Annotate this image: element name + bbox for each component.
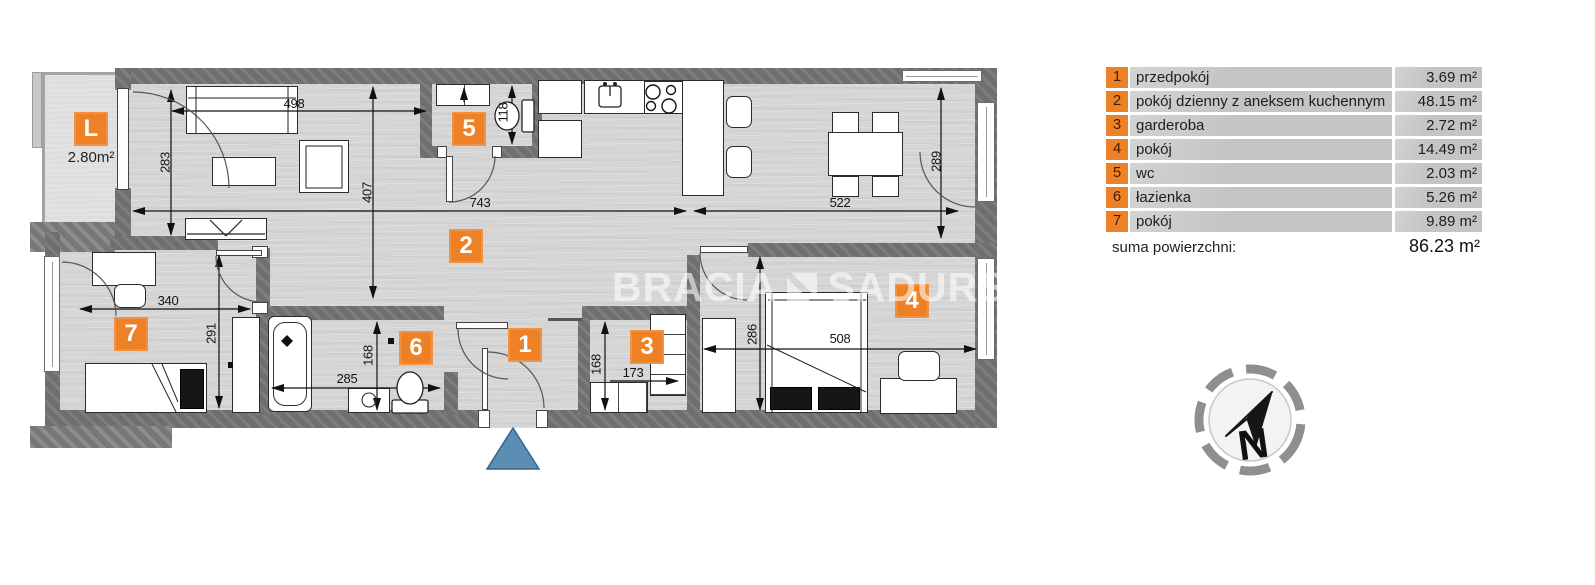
kitchen-cabinet-b — [538, 120, 582, 158]
balcony-door — [117, 88, 129, 190]
legend-row-name: łazienka — [1130, 187, 1392, 208]
bar-chair-b — [726, 146, 752, 178]
dim-168-bath: 168 — [361, 338, 376, 374]
legend-row: 1 przedpokój 3.69 m² — [1106, 67, 1482, 88]
coffee-table — [212, 157, 276, 186]
legend-row-number: 2 — [1106, 91, 1128, 112]
wall-left-upper — [115, 68, 131, 90]
stove — [644, 81, 684, 114]
legend-row: 5 wc 2.03 m² — [1106, 163, 1482, 184]
watermark-logo-icon — [787, 273, 817, 303]
wc-washbasin — [436, 84, 490, 106]
dim-522: 522 — [822, 195, 858, 210]
legend-row: 4 pokój 14.49 m² — [1106, 139, 1482, 160]
floorplan-page: 1 2 3 4 5 6 7 L 2.80m² 498 283 407 743 5… — [0, 0, 1595, 585]
legend-row-name: pokój — [1130, 211, 1392, 232]
room4-wardrobe — [702, 318, 736, 413]
dining-chair-3 — [832, 176, 859, 197]
wc-door — [446, 156, 453, 202]
dining-chair-1 — [832, 112, 859, 133]
legend-row: 2 pokój dzienny z aneksem kuchennym 48.1… — [1106, 91, 1482, 112]
legend-row-area: 2.03 m² — [1395, 163, 1482, 184]
dim-340: 340 — [150, 293, 186, 308]
legend-row-name: garderoba — [1130, 115, 1392, 136]
wall-corner-block — [30, 222, 115, 252]
kitchen-island — [682, 80, 724, 196]
bar-chair-a — [726, 96, 752, 128]
legend-row-name: pokój dzienny z aneksem kuchennym — [1130, 91, 1392, 112]
watermark-text-right: SADURSCY — [827, 264, 1065, 311]
legend-row: 7 pokój 9.89 m² — [1106, 211, 1482, 232]
room7-desk — [92, 252, 156, 286]
jamb-wc-b — [492, 146, 502, 158]
balcony-area: 2.80m² — [56, 149, 126, 166]
room4-desk — [880, 378, 957, 414]
dining-table — [828, 132, 903, 176]
legend-row-area: 2.72 m² — [1395, 115, 1482, 136]
legend-row: 6 łazienka 5.26 m² — [1106, 187, 1482, 208]
legend-total-value: 86.23 m² — [1409, 236, 1482, 257]
legend-row-number: 3 — [1106, 115, 1128, 136]
room4-pillow-b — [818, 387, 860, 410]
room-label-6: 6 — [399, 331, 433, 365]
legend-row-number: 7 — [1106, 211, 1128, 232]
watermark-text-left: BRACIA — [612, 264, 777, 311]
bath-washbasin — [348, 388, 390, 413]
wall-bottom-step — [30, 426, 172, 448]
wall-dining-room4 — [748, 243, 997, 257]
room-label-3: 3 — [630, 330, 664, 364]
jamb-entrance-a — [478, 410, 490, 428]
entrance-door — [482, 348, 488, 410]
room-label-7: 7 — [114, 317, 148, 351]
dim-173: 173 — [615, 365, 651, 380]
dim-291: 291 — [204, 316, 219, 352]
room4-chair — [898, 351, 940, 381]
compass: N — [1190, 360, 1310, 480]
wall-left-lower — [115, 188, 131, 240]
room-label-1: 1 — [508, 328, 542, 362]
dining-chair-4 — [872, 176, 899, 197]
bathtub-inner — [273, 322, 307, 406]
dim-508: 508 — [822, 331, 858, 346]
floorplan: 1 2 3 4 5 6 7 L 2.80m² 498 283 407 743 5… — [0, 0, 1010, 585]
jamb-entrance-b — [536, 410, 548, 428]
wall-stub-left — [32, 72, 42, 148]
watermark: BRACIA SADURSCY — [612, 264, 1066, 311]
dining-chair-2 — [872, 112, 899, 133]
dim-286: 286 — [745, 317, 760, 353]
legend-row-area: 5.26 m² — [1395, 187, 1482, 208]
room4-pillow-a — [770, 387, 812, 410]
dim-118: 118 — [496, 95, 511, 131]
compass-north-label: N — [1235, 419, 1272, 470]
legend-row-number: 1 — [1106, 67, 1128, 88]
legend-row-area: 14.49 m² — [1395, 139, 1482, 160]
legend-row-name: pokój — [1130, 139, 1392, 160]
wall-bath-stub — [444, 372, 458, 415]
dim-743: 743 — [462, 195, 498, 210]
room7-chair — [114, 284, 146, 308]
legend-row-area: 48.15 m² — [1395, 91, 1482, 112]
room4-door — [700, 246, 748, 253]
legend-row: 3 garderoba 2.72 m² — [1106, 115, 1482, 136]
garderoba-shelf-bottom — [590, 382, 648, 413]
legend-row-number: 6 — [1106, 187, 1128, 208]
room7-wardrobe — [232, 317, 260, 413]
wall-room7-left-a — [45, 232, 60, 258]
jamb-corridor-mid — [252, 302, 268, 314]
dim-168-ward: 168 — [589, 347, 604, 383]
garderoba-sill — [548, 318, 582, 321]
tv-stand — [185, 218, 267, 240]
balcony-label: L — [74, 112, 108, 146]
legend-row-name: przedpokój — [1130, 67, 1392, 88]
hall-bath-door — [456, 322, 508, 329]
legend-row-number: 5 — [1106, 163, 1128, 184]
legend-row-area: 3.69 m² — [1395, 67, 1482, 88]
dim-407: 407 — [360, 175, 375, 211]
room-label-2: 2 — [449, 229, 483, 263]
room7-door — [216, 250, 262, 256]
legend-row-name: wc — [1130, 163, 1392, 184]
legend-total-row: suma powierzchni: 86.23 m² — [1106, 236, 1482, 257]
window-room7 — [44, 256, 60, 372]
dim-498: 498 — [276, 96, 312, 111]
dim-283: 283 — [158, 145, 173, 181]
armchair — [299, 140, 349, 193]
window-top-right — [902, 70, 982, 82]
legend-row-number: 4 — [1106, 139, 1128, 160]
legend-row-area: 9.89 m² — [1395, 211, 1482, 232]
window-dining — [977, 102, 995, 202]
legend-total-label: suma powierzchni: — [1106, 239, 1236, 256]
dim-289: 289 — [929, 144, 944, 180]
entrance-marker — [487, 428, 539, 469]
room-label-5: 5 — [452, 112, 486, 146]
room7-pillow — [180, 369, 204, 409]
legend-table: 1 przedpokój 3.69 m² 2 pokój dzienny z a… — [1106, 67, 1482, 257]
kitchen-cabinet-a — [538, 80, 582, 114]
